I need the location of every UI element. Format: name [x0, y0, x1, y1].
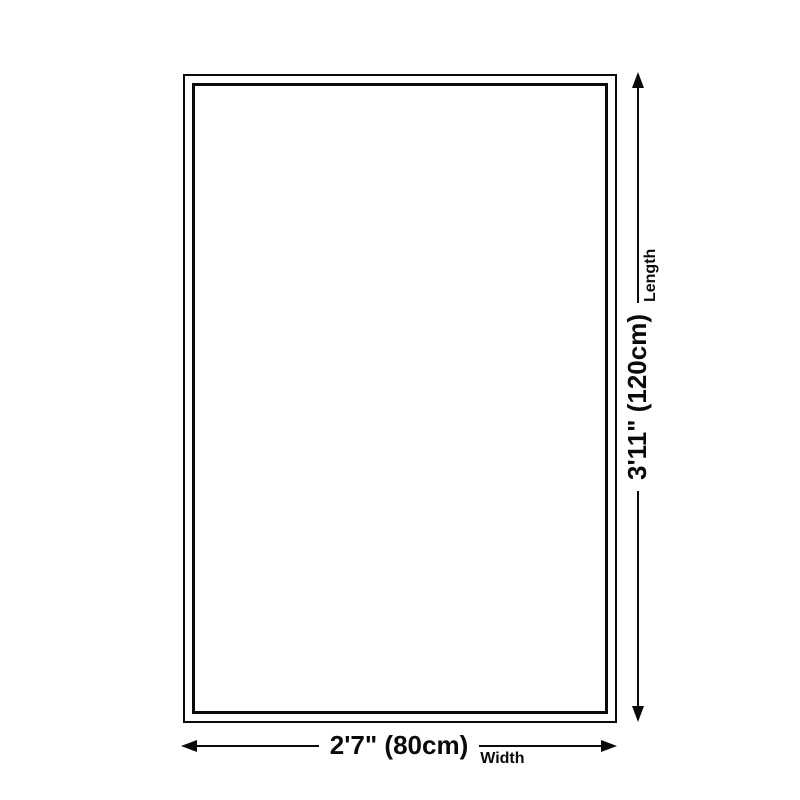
length-dimension-line — [637, 491, 639, 706]
length-value-label: 3'11" (120cm) — [623, 314, 653, 480]
dimension-diagram: 3'11" (120cm) Length 2'7" (80cm) Width — [0, 0, 800, 800]
length-dimension-line: Length — [637, 88, 639, 303]
arrow-up-icon — [632, 72, 644, 88]
rug-outline — [183, 74, 617, 723]
width-value-label: 2'7" (80cm) — [330, 731, 468, 761]
arrow-left-icon — [181, 740, 197, 752]
width-axis-label: Width — [480, 750, 524, 768]
arrow-right-icon — [601, 740, 617, 752]
width-dimension-line — [197, 745, 319, 747]
arrow-down-icon — [632, 706, 644, 722]
width-dimension-line: Width — [479, 745, 601, 747]
width-dimension: 2'7" (80cm) Width — [181, 723, 617, 769]
rug-inner-border — [192, 83, 608, 714]
length-axis-label: Length — [642, 249, 660, 302]
length-dimension: 3'11" (120cm) Length — [615, 72, 661, 722]
